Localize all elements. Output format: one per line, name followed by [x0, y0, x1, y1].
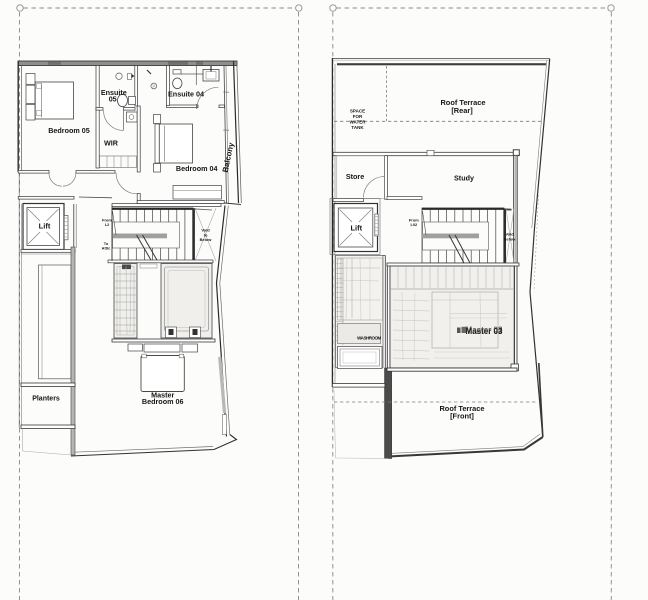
- svg-text:WASHROOM: WASHROOM: [357, 335, 381, 340]
- svg-text:Study: Study: [454, 173, 474, 182]
- svg-text:Ensuite 04: Ensuite 04: [168, 90, 204, 99]
- svg-text:Master 03: Master 03: [466, 326, 503, 335]
- svg-text:Lift: Lift: [350, 223, 362, 232]
- svg-text:Store: Store: [346, 172, 364, 181]
- svg-text:TANK: TANK: [351, 125, 364, 130]
- svg-text:05: 05: [109, 95, 117, 104]
- svg-text:Attic: Attic: [102, 246, 111, 251]
- svg-text:Planters: Planters: [32, 396, 60, 403]
- svg-text:FOR: FOR: [353, 114, 363, 119]
- svg-text:Bedroom 06: Bedroom 06: [142, 397, 184, 406]
- svg-text:Bedroom 04: Bedroom 04: [176, 164, 218, 173]
- svg-text:[Front]: [Front]: [450, 411, 474, 420]
- svg-text:WIR: WIR: [104, 139, 119, 148]
- svg-text:[Rear]: [Rear]: [451, 106, 473, 115]
- svg-text:SPACE: SPACE: [350, 109, 365, 114]
- svg-text:Lift: Lift: [39, 221, 51, 230]
- svg-text:WATER: WATER: [350, 120, 367, 125]
- svg-text:Bedroom 05: Bedroom 05: [48, 126, 90, 135]
- svg-text:L02: L02: [410, 222, 418, 227]
- svg-text:Below: Below: [504, 236, 517, 241]
- svg-text:Below: Below: [200, 237, 213, 242]
